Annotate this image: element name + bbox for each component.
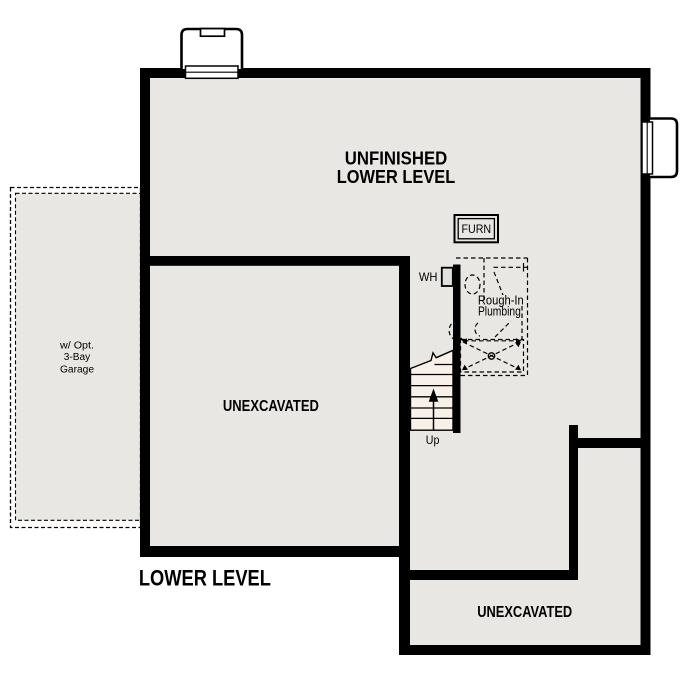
svg-text:UNEXCAVATED: UNEXCAVATED xyxy=(477,604,572,621)
svg-text:LOWER LEVEL: LOWER LEVEL xyxy=(337,166,456,187)
svg-text:Garage: Garage xyxy=(60,365,94,376)
svg-text:UNEXCAVATED: UNEXCAVATED xyxy=(223,398,319,415)
svg-text:LOWER LEVEL: LOWER LEVEL xyxy=(139,565,271,590)
svg-text:Up: Up xyxy=(426,433,440,447)
svg-text:w/ Opt.: w/ Opt. xyxy=(59,341,94,352)
svg-text:Plumbing: Plumbing xyxy=(478,304,521,319)
svg-text:WH: WH xyxy=(419,270,438,284)
svg-text:3-Bay: 3-Bay xyxy=(64,352,91,363)
svg-text:FURN: FURN xyxy=(461,222,491,236)
